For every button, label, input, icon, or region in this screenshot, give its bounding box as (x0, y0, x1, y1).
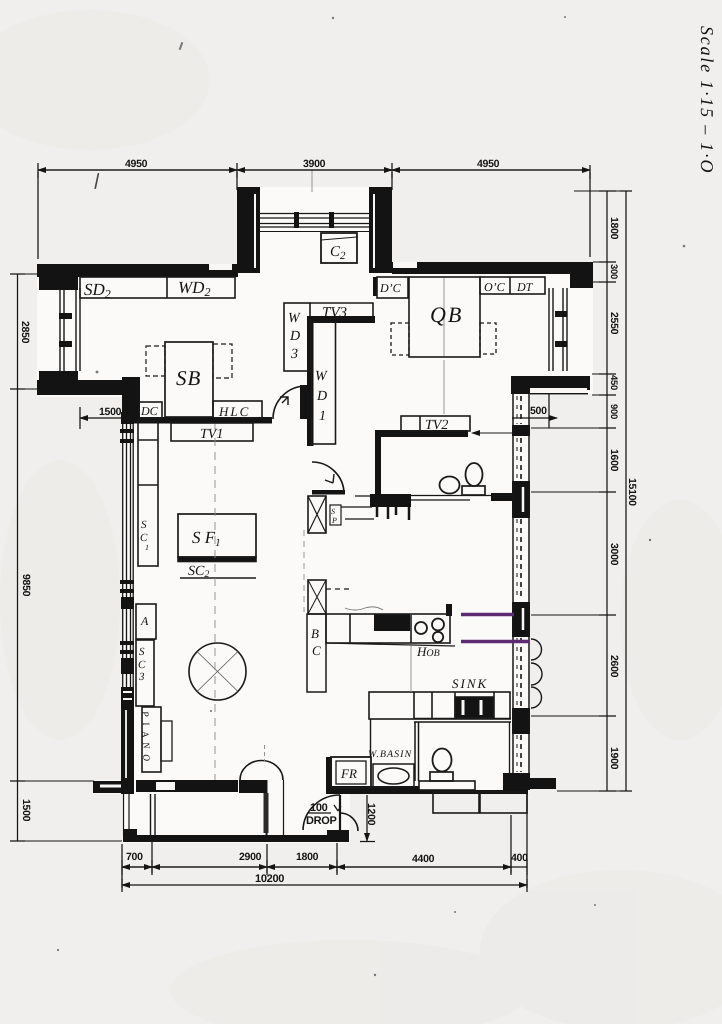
svg-text:SINK: SINK (452, 676, 488, 691)
svg-text:S: S (141, 519, 147, 531)
svg-text:B: B (311, 626, 319, 641)
svg-text:QB: QB (430, 302, 463, 327)
svg-text:D: D (316, 389, 327, 404)
svg-text:300: 300 (608, 264, 619, 279)
svg-text:C: C (138, 659, 146, 671)
svg-text:900: 900 (608, 404, 619, 419)
svg-text:DC: DC (140, 404, 159, 418)
svg-text:2900: 2900 (239, 851, 262, 863)
svg-text:1500: 1500 (99, 406, 122, 418)
svg-text:TV2: TV2 (425, 418, 448, 433)
svg-text:W: W (315, 369, 328, 384)
svg-text:P: P (331, 516, 337, 525)
svg-text:W.BASIN: W.BASIN (368, 749, 412, 760)
svg-text:3900: 3900 (303, 158, 326, 170)
svg-text:TV3: TV3 (322, 305, 347, 321)
svg-text:TV1: TV1 (200, 427, 223, 442)
svg-text:S: S (139, 646, 145, 658)
svg-text:DROP: DROP (306, 815, 337, 827)
svg-text:A: A (140, 614, 149, 628)
svg-text:400: 400 (511, 852, 528, 864)
svg-text:15100: 15100 (626, 478, 638, 506)
svg-text:D: D (289, 329, 300, 344)
svg-text:1200: 1200 (365, 803, 377, 826)
svg-text:3: 3 (138, 671, 145, 683)
svg-text:4950: 4950 (477, 158, 500, 170)
svg-text:1: 1 (145, 543, 149, 552)
svg-text:2550: 2550 (608, 312, 620, 335)
svg-text:O’C: O’C (484, 280, 506, 294)
svg-text:SB: SB (176, 366, 201, 390)
svg-text:9850: 9850 (20, 574, 32, 597)
svg-text:2850: 2850 (19, 321, 31, 344)
svg-text:HLC: HLC (218, 404, 250, 419)
svg-text:C: C (312, 643, 321, 658)
svg-text:100: 100 (310, 802, 328, 814)
svg-text:Scale 1·15 – 1·O: Scale 1·15 – 1·O (697, 26, 717, 174)
svg-text:10200: 10200 (255, 873, 284, 885)
svg-text:FR: FR (340, 766, 357, 781)
svg-text:D’C: D’C (379, 281, 402, 295)
svg-text:1800: 1800 (608, 217, 620, 240)
svg-text:1: 1 (319, 409, 326, 424)
svg-text:700: 700 (126, 851, 143, 863)
svg-text:1500: 1500 (20, 799, 32, 822)
svg-text:500: 500 (530, 405, 547, 417)
svg-text:4950: 4950 (125, 158, 148, 170)
svg-text:S: S (331, 507, 335, 516)
svg-text:W: W (288, 311, 301, 326)
svg-text:2600: 2600 (608, 655, 620, 678)
svg-text:1600: 1600 (608, 449, 620, 472)
svg-text:DT: DT (516, 280, 534, 294)
svg-text:3000: 3000 (608, 543, 620, 566)
svg-text:1900: 1900 (608, 747, 620, 770)
svg-text:450: 450 (608, 375, 619, 390)
svg-text:3: 3 (290, 347, 298, 362)
svg-text:4400: 4400 (412, 853, 435, 865)
svg-text:1800: 1800 (296, 851, 319, 863)
